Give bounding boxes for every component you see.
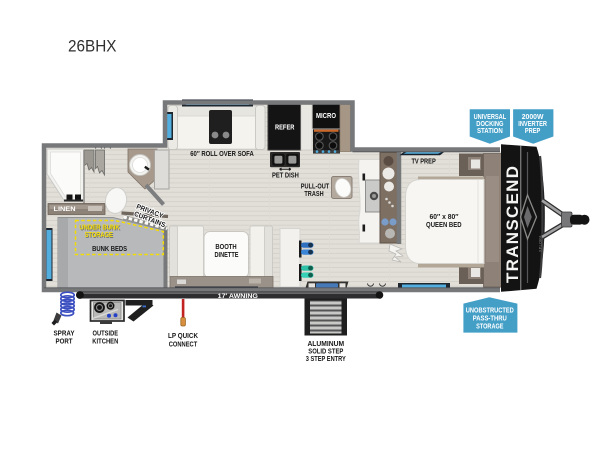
svg-text:MICRO: MICRO [316,111,336,120]
svg-text:PET DISH: PET DISH [272,170,299,179]
svg-text:DOCKING: DOCKING [476,121,503,128]
svg-text:XPLORA: XPLORA [539,235,543,252]
svg-text:UNOBSTRUCTED: UNOBSTRUCTED [466,308,514,315]
svg-text:STORAGE: STORAGE [85,230,113,239]
svg-text:QUEEN BED: QUEEN BED [426,220,462,229]
svg-text:PORT: PORT [56,337,73,346]
svg-text:BUNK BEDS: BUNK BEDS [92,244,127,253]
svg-text:DINETTE: DINETTE [215,250,239,259]
svg-text:3 STEP ENTRY: 3 STEP ENTRY [306,354,346,363]
svg-text:PASS-THRU: PASS-THRU [473,316,507,323]
svg-text:UNIVERSAL: UNIVERSAL [474,114,507,121]
svg-text:LINEN: LINEN [54,206,77,213]
svg-text:2000W: 2000W [522,114,544,121]
svg-text:KITCHEN: KITCHEN [92,337,118,346]
svg-text:17′ AWNING: 17′ AWNING [218,293,258,300]
svg-text:STORAGE: STORAGE [476,323,504,330]
svg-text:TRASH: TRASH [304,189,323,198]
svg-text:26BHX: 26BHX [68,38,117,56]
svg-text:TRANSCEND: TRANSCEND [503,166,522,283]
svg-text:60″ ROLL OVER SOFA: 60″ ROLL OVER SOFA [190,149,254,158]
svg-text:STATION: STATION [477,128,503,135]
svg-text:REFER: REFER [275,123,295,132]
svg-text:CONNECT: CONNECT [169,339,198,348]
svg-text:PREP: PREP [525,128,541,135]
svg-text:TV PREP: TV PREP [411,157,435,166]
svg-text:INVERTER: INVERTER [518,121,547,128]
